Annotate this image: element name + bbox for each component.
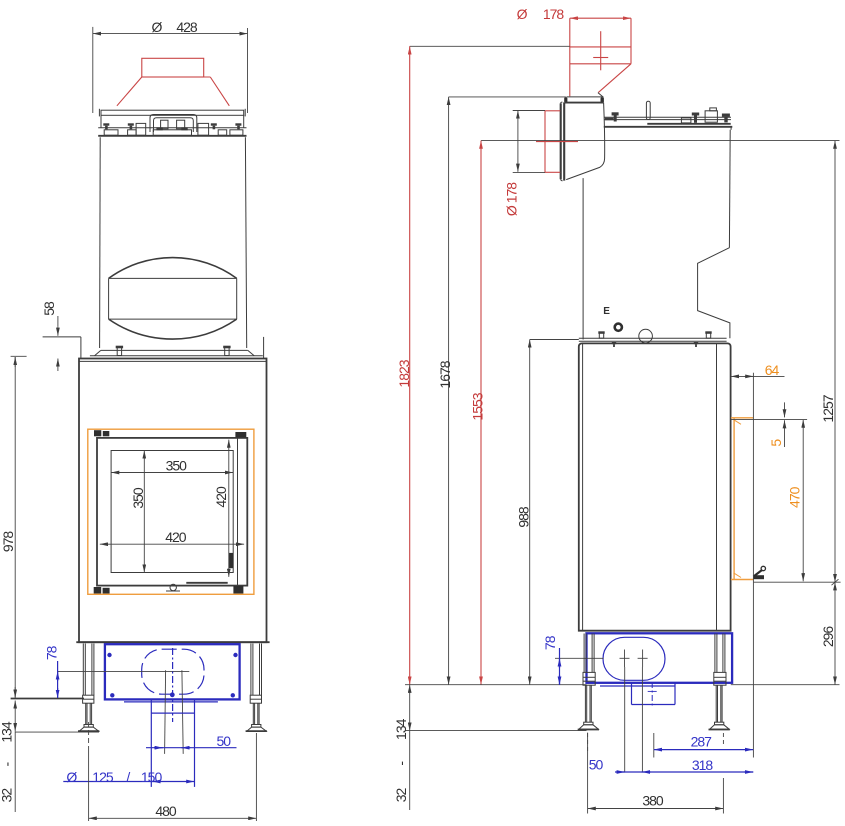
svg-text:Ø: Ø [66,769,77,785]
svg-text:1678: 1678 [437,360,453,388]
svg-text:318: 318 [692,757,714,773]
svg-text:Ø: Ø [152,19,163,35]
svg-text:1257: 1257 [820,394,836,422]
svg-text:125: 125 [92,769,114,785]
svg-text:178: 178 [543,6,565,22]
svg-text:380: 380 [642,792,664,808]
svg-text:32: 32 [393,788,409,803]
svg-text:78: 78 [43,645,59,660]
svg-text:350: 350 [166,458,188,474]
svg-text:1553: 1553 [470,392,486,420]
svg-text:50: 50 [589,757,604,773]
svg-text:64: 64 [765,362,780,378]
svg-text:E: E [603,306,610,317]
svg-text:420: 420 [213,486,229,508]
svg-text:978: 978 [0,531,16,553]
svg-text:32: 32 [0,788,15,803]
svg-text:58: 58 [41,301,57,316]
svg-text:296: 296 [820,626,836,648]
svg-text:480: 480 [155,803,177,819]
svg-text:Ø 178: Ø 178 [503,182,519,216]
svg-text:420: 420 [165,529,187,545]
svg-text:470: 470 [787,486,803,508]
svg-text:150: 150 [141,769,163,785]
svg-text:1823: 1823 [396,359,412,387]
svg-text:5: 5 [768,439,784,447]
svg-text:Ø: Ø [517,6,528,22]
svg-text:78: 78 [542,635,558,650]
svg-text:134: 134 [0,721,15,743]
svg-text:988: 988 [516,506,532,528]
svg-text:428: 428 [176,19,198,35]
svg-text:134: 134 [393,718,409,740]
svg-text:350: 350 [130,487,146,509]
svg-text:287: 287 [691,734,713,750]
svg-text:50: 50 [217,733,232,749]
